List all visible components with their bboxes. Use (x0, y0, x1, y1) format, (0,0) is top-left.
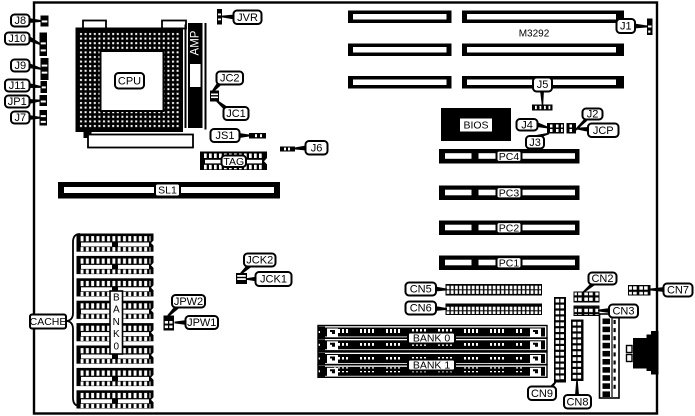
svg-text:J3: J3 (529, 137, 541, 149)
svg-text:M3292: M3292 (519, 29, 550, 40)
svg-text:CN6: CN6 (410, 303, 432, 315)
svg-text:JCK1: JCK1 (260, 274, 287, 286)
svg-text:AMP: AMP (190, 30, 202, 55)
svg-text:PC4: PC4 (499, 151, 520, 163)
svg-text:JP1: JP1 (8, 96, 27, 108)
svg-text:J5: J5 (537, 79, 549, 91)
svg-text:JPW1: JPW1 (187, 317, 216, 329)
svg-text:J4: J4 (521, 119, 533, 131)
svg-text:J10: J10 (8, 33, 26, 45)
svg-text:JVR: JVR (237, 12, 258, 24)
svg-text:JCP: JCP (593, 125, 614, 137)
svg-text:JPW2: JPW2 (174, 296, 203, 308)
svg-text:J8: J8 (14, 15, 26, 27)
svg-text:J1: J1 (620, 21, 632, 33)
svg-text:J2: J2 (587, 109, 599, 121)
svg-text:TAG: TAG (223, 156, 244, 168)
svg-text:CN9: CN9 (531, 388, 553, 400)
svg-text:J11: J11 (9, 80, 26, 92)
svg-text:BIOS: BIOS (463, 120, 488, 132)
svg-text:J9: J9 (14, 60, 26, 72)
svg-text:CACHE: CACHE (30, 316, 67, 328)
svg-text:BANK 0: BANK 0 (413, 333, 451, 345)
svg-text:CN2: CN2 (591, 273, 613, 285)
svg-text:JCK2: JCK2 (246, 255, 273, 267)
svg-text:K: K (113, 329, 120, 340)
svg-text:CN8: CN8 (566, 396, 588, 408)
svg-text:PC3: PC3 (499, 187, 520, 199)
svg-text:CPU: CPU (118, 75, 141, 87)
svg-text:0: 0 (114, 341, 120, 352)
svg-text:JC2: JC2 (220, 73, 240, 85)
svg-text:JS1: JS1 (216, 130, 235, 142)
svg-text:N: N (113, 317, 120, 328)
svg-text:PC1: PC1 (499, 257, 520, 269)
svg-text:CN7: CN7 (667, 285, 689, 297)
svg-text:JC1: JC1 (226, 108, 246, 120)
svg-text:SL1: SL1 (158, 185, 177, 197)
svg-text:PC2: PC2 (499, 222, 520, 234)
svg-text:BANK 1: BANK 1 (413, 360, 451, 372)
svg-text:J6: J6 (311, 142, 323, 154)
svg-text:J7: J7 (14, 112, 26, 124)
svg-text:CN5: CN5 (410, 284, 432, 296)
svg-text:A: A (113, 305, 120, 316)
svg-text:B: B (113, 293, 120, 304)
svg-text:CN3: CN3 (612, 306, 634, 318)
